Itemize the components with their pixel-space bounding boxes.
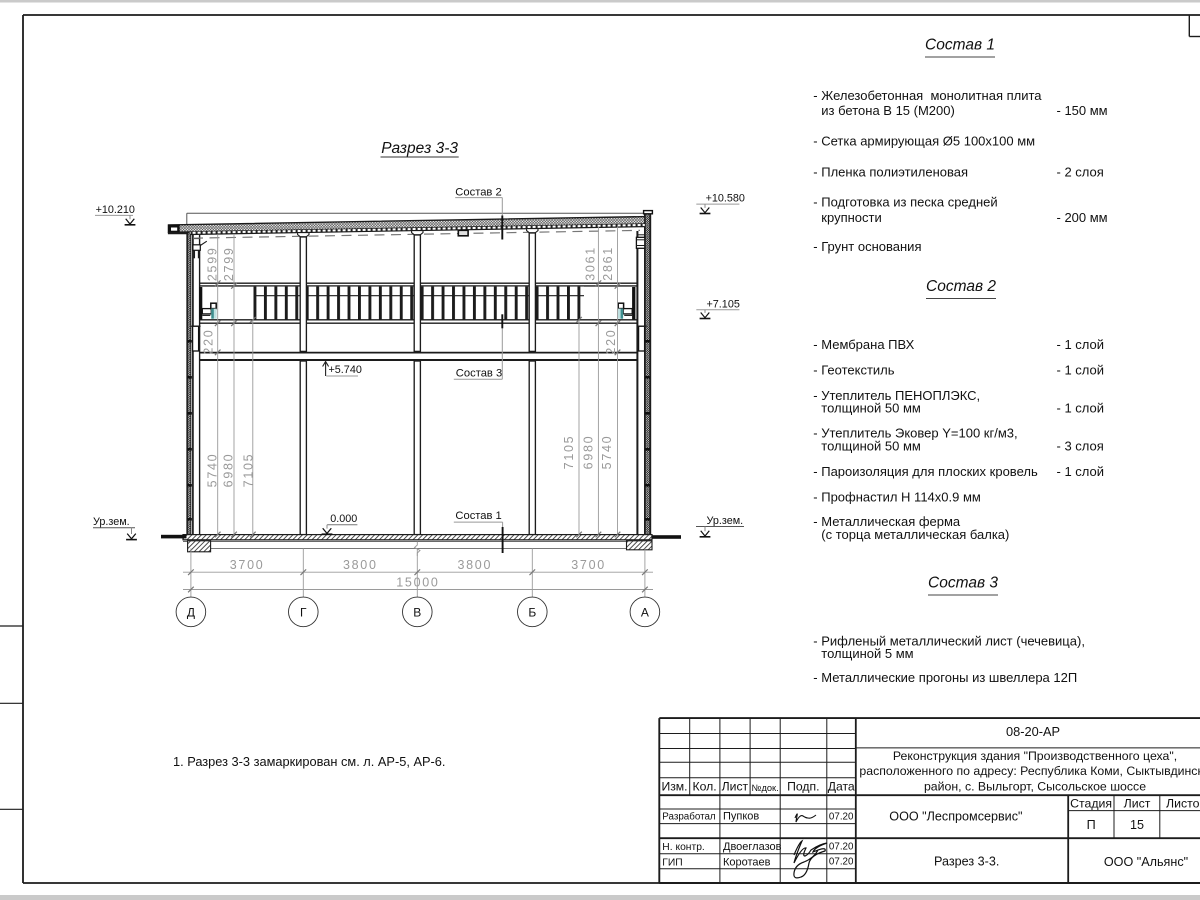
svg-text:- Металлические прогоны из шве: - Металлические прогоны из швеллера 12П — [813, 670, 1077, 685]
svg-text:толщиной 50 мм: толщиной 50 мм — [821, 401, 921, 416]
svg-text:- Профнастил Н 114х0.9 мм: - Профнастил Н 114х0.9 мм — [813, 490, 981, 505]
svg-text:3061: 3061 — [583, 246, 597, 281]
svg-text:Состав 3: Состав 3 — [456, 368, 502, 380]
svg-text:+7.105: +7.105 — [707, 298, 740, 310]
svg-text:В: В — [413, 605, 421, 619]
svg-text:Коротаев: Коротаев — [723, 856, 771, 868]
svg-text:15: 15 — [1130, 818, 1144, 832]
svg-text:15000: 15000 — [396, 575, 439, 589]
svg-text:- Мембрана ПВХ: - Мембрана ПВХ — [813, 337, 914, 352]
svg-text:220: 220 — [604, 329, 618, 355]
svg-text:- Железобетонная монолитная п: - Железобетонная монолитная плита — [813, 88, 1042, 103]
svg-text:Подп.: Подп. — [787, 780, 819, 794]
svg-text:+10.210: +10.210 — [96, 204, 135, 216]
svg-text:Дата: Дата — [828, 780, 855, 794]
svg-text:+5.740: +5.740 — [329, 364, 362, 376]
svg-text:Лист: Лист — [722, 780, 749, 794]
svg-text:Состав 1: Состав 1 — [925, 37, 995, 54]
svg-text:Д: Д — [187, 605, 195, 619]
svg-text:№док.: №док. — [751, 783, 778, 793]
svg-text:- Пароизоляция для плоских кро: - Пароизоляция для плоских кровель — [813, 464, 1038, 479]
svg-text:(с торца металлическая балка): (с торца металлическая балка) — [821, 527, 1009, 542]
svg-text:- 1 слой: - 1 слой — [1057, 401, 1105, 416]
svg-text:- Сетка армирующая Ø5 100х100: - Сетка армирующая Ø5 100х100 мм — [813, 134, 1035, 149]
svg-text:Стадия: Стадия — [1070, 796, 1112, 810]
svg-text:район, с. Выльгорт, Сысольское: район, с. Выльгорт, Сысольское шоссе — [924, 780, 1146, 794]
svg-text:5740: 5740 — [600, 435, 614, 470]
svg-text:1. Разрез 3-3 замаркирован см.: 1. Разрез 3-3 замаркирован см. л. АР-5, … — [173, 754, 445, 769]
svg-text:Кол.: Кол. — [693, 780, 717, 794]
svg-text:Пупков: Пупков — [723, 811, 759, 823]
svg-text:- 1 слой: - 1 слой — [1057, 464, 1105, 479]
svg-text:из бетона В 15 (М200): из бетона В 15 (М200) — [821, 103, 955, 118]
svg-text:Разработал: Разработал — [662, 812, 716, 823]
svg-text:ГИП: ГИП — [662, 857, 682, 868]
svg-text:3700: 3700 — [230, 558, 265, 572]
svg-text:2799: 2799 — [222, 246, 236, 281]
svg-text:- 1 слой: - 1 слой — [1057, 337, 1105, 352]
svg-text:ООО "Леспромсервис": ООО "Леспромсервис" — [889, 809, 1022, 823]
svg-text:ООО "Альянс": ООО "Альянс" — [1104, 855, 1188, 869]
svg-text:- 1 слой: - 1 слой — [1057, 363, 1105, 378]
svg-text:Двоеглазов: Двоеглазов — [723, 841, 782, 853]
svg-text:Разрез 3-3.: Разрез 3-3. — [934, 854, 999, 868]
svg-text:Г: Г — [300, 605, 307, 619]
svg-text:- Пленка полиэтиленовая: - Пленка полиэтиленовая — [813, 165, 968, 180]
svg-text:08-20-АР: 08-20-АР — [1006, 724, 1060, 739]
svg-text:А: А — [641, 605, 649, 619]
svg-text:+10.580: +10.580 — [706, 193, 745, 205]
svg-text:- 150 мм: - 150 мм — [1057, 103, 1108, 118]
svg-text:Листов: Листов — [1166, 796, 1200, 810]
svg-text:3700: 3700 — [571, 558, 606, 572]
svg-text:Н. контр.: Н. контр. — [662, 842, 705, 853]
svg-text:толщиной 50 мм: толщиной 50 мм — [821, 439, 921, 454]
svg-text:2599: 2599 — [206, 246, 220, 281]
svg-text:Состав 2: Состав 2 — [926, 278, 996, 295]
svg-text:Лист: Лист — [1124, 796, 1151, 810]
svg-text:П: П — [1087, 818, 1096, 832]
svg-text:3800: 3800 — [457, 558, 492, 572]
svg-text:5740: 5740 — [206, 453, 220, 488]
svg-text:07.20: 07.20 — [829, 812, 854, 823]
svg-text:- Грунт основания: - Грунт основания — [813, 239, 921, 254]
svg-text:3800: 3800 — [343, 558, 378, 572]
svg-text:Разрез 3-3: Разрез 3-3 — [381, 140, 458, 157]
svg-text:2861: 2861 — [601, 246, 615, 281]
svg-text:толщиной 5 мм: толщиной 5 мм — [821, 646, 913, 661]
svg-text:7105: 7105 — [242, 453, 256, 488]
svg-text:7105: 7105 — [562, 435, 576, 470]
svg-text:Ур.зем.: Ур.зем. — [93, 516, 130, 528]
svg-text:07.20: 07.20 — [829, 857, 854, 868]
svg-text:6980: 6980 — [222, 453, 236, 488]
svg-text:Состав 3: Состав 3 — [928, 575, 998, 592]
svg-text:- Подготовка из песка средней: - Подготовка из песка средней — [813, 195, 997, 210]
svg-text:Реконструкция здания "Производ: Реконструкция здания "Производственного … — [893, 749, 1177, 763]
svg-text:Состав 2: Состав 2 — [455, 186, 501, 198]
svg-text:крупности: крупности — [821, 210, 881, 225]
svg-text:220: 220 — [201, 329, 215, 355]
svg-text:Состав 1: Состав 1 — [455, 510, 501, 522]
svg-text:- 3 слоя: - 3 слоя — [1057, 439, 1104, 454]
svg-text:0.000: 0.000 — [330, 513, 357, 525]
svg-text:07.20: 07.20 — [829, 841, 854, 852]
svg-text:6980: 6980 — [582, 435, 596, 470]
svg-text:Ур.зем.: Ур.зем. — [707, 515, 744, 527]
svg-text:- 2 слоя: - 2 слоя — [1057, 165, 1104, 180]
svg-text:расположенного по адресу: Респ: расположенного по адресу: Республика Ком… — [859, 764, 1200, 778]
svg-text:Изм.: Изм. — [661, 780, 687, 794]
svg-text:- Геотекстиль: - Геотекстиль — [813, 363, 894, 378]
svg-text:- 200 мм: - 200 мм — [1057, 210, 1108, 225]
svg-text:Б: Б — [528, 605, 536, 619]
